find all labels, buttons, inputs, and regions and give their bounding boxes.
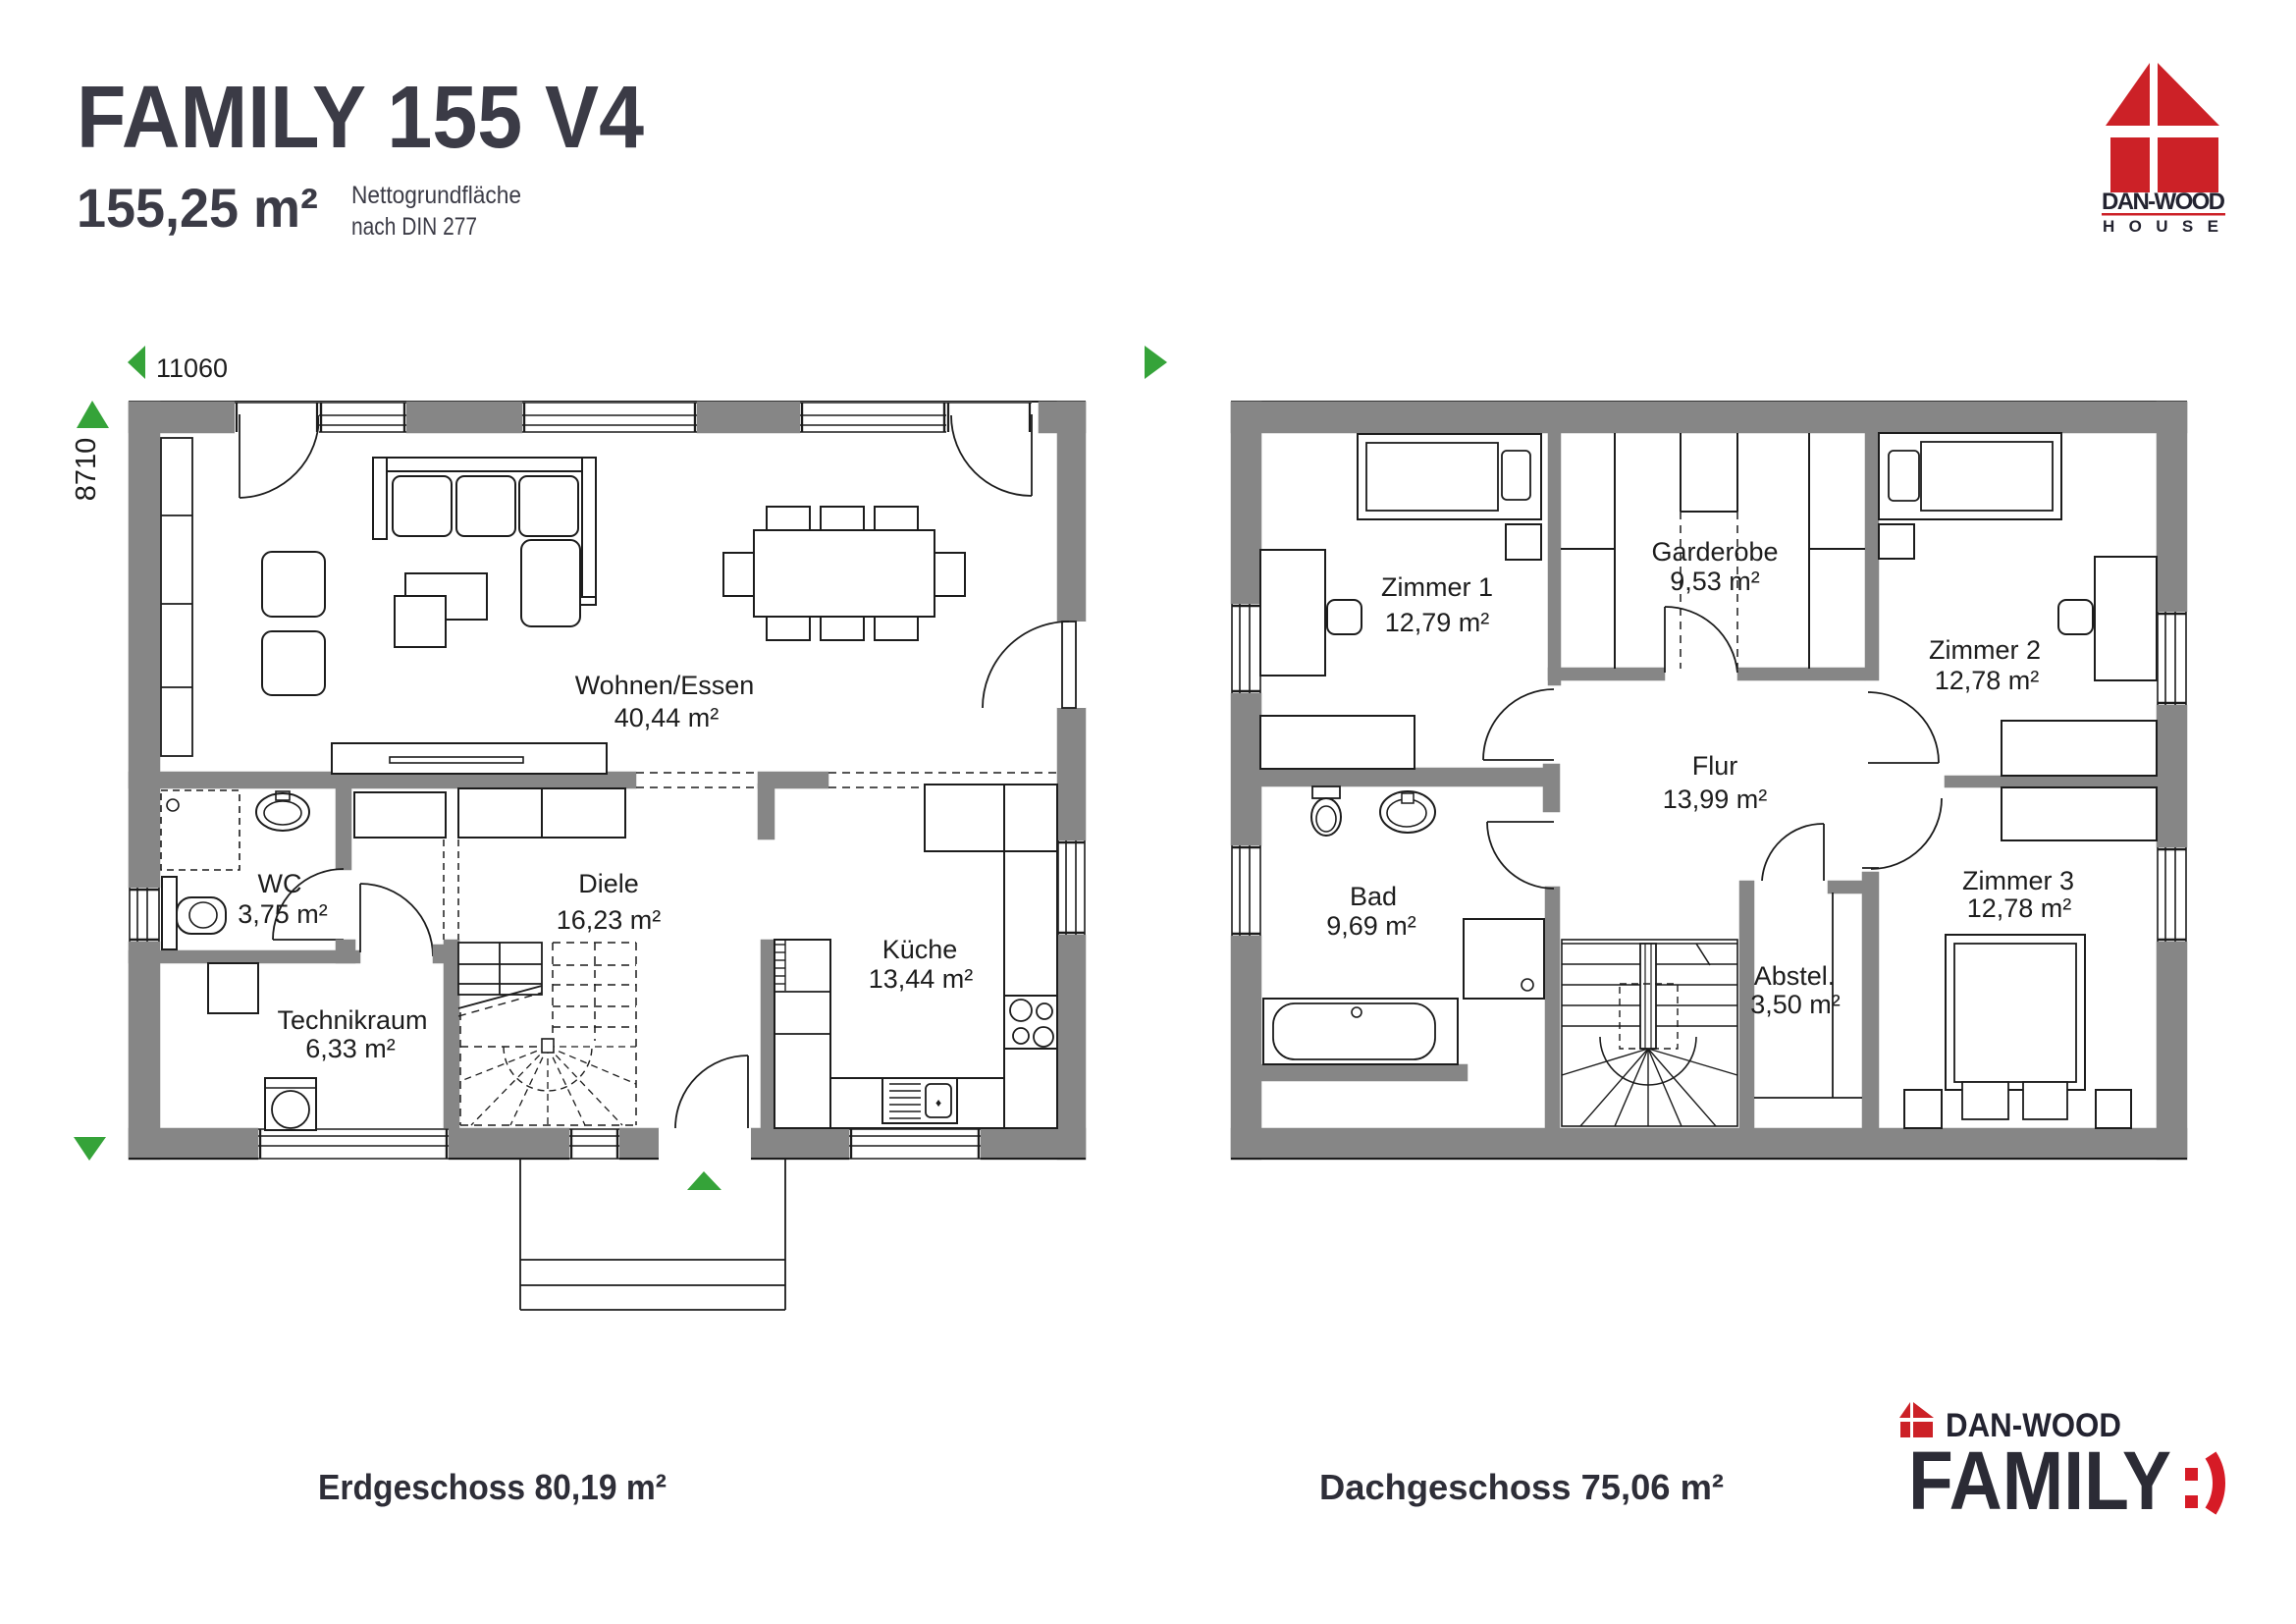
svg-text:Zimmer 2: Zimmer 2 <box>1929 635 2041 665</box>
svg-text:Garderobe: Garderobe <box>1651 537 1778 567</box>
svg-text:Diele: Diele <box>578 869 639 898</box>
svg-text:3,75 m²: 3,75 m² <box>238 899 328 929</box>
svg-text:12,78 m²: 12,78 m² <box>1935 666 2040 695</box>
svg-text:Küche: Küche <box>882 935 958 964</box>
svg-text:FAMILY: FAMILY <box>1908 1435 2171 1527</box>
svg-text:6,33 m²: 6,33 m² <box>305 1034 396 1063</box>
svg-text:12,79 m²: 12,79 m² <box>1385 608 1490 637</box>
svg-text:♦: ♦ <box>935 1096 941 1110</box>
svg-text:3,50 m²: 3,50 m² <box>1750 990 1841 1019</box>
svg-text:12,78 m²: 12,78 m² <box>1967 893 2072 923</box>
svg-text:13,44 m²: 13,44 m² <box>869 964 974 994</box>
svg-text:WC: WC <box>258 869 302 898</box>
svg-text:Technikraum: Technikraum <box>277 1005 427 1035</box>
svg-text:Zimmer 3: Zimmer 3 <box>1962 866 2074 895</box>
svg-text:8710: 8710 <box>71 438 102 502</box>
svg-text:Bad: Bad <box>1350 882 1397 911</box>
svg-text:13,99 m²: 13,99 m² <box>1663 785 1768 814</box>
svg-text:Erdgeschoss 80,19 m²: Erdgeschoss 80,19 m² <box>318 1467 667 1507</box>
svg-text:Wohnen/Essen: Wohnen/Essen <box>575 671 755 700</box>
svg-text:9,53 m²: 9,53 m² <box>1670 567 1760 596</box>
svg-text:9,69 m²: 9,69 m² <box>1326 911 1416 941</box>
svg-text:Flur: Flur <box>1692 751 1738 781</box>
svg-text:Dachgeschoss 75,06 m²: Dachgeschoss 75,06 m² <box>1319 1467 1724 1507</box>
svg-text:40,44 m²: 40,44 m² <box>614 703 720 732</box>
svg-text:Abstel.: Abstel. <box>1754 961 1836 991</box>
svg-text:11060: 11060 <box>156 353 228 383</box>
svg-text:Zimmer 1: Zimmer 1 <box>1381 572 1493 602</box>
svg-text:16,23 m²: 16,23 m² <box>557 905 662 935</box>
